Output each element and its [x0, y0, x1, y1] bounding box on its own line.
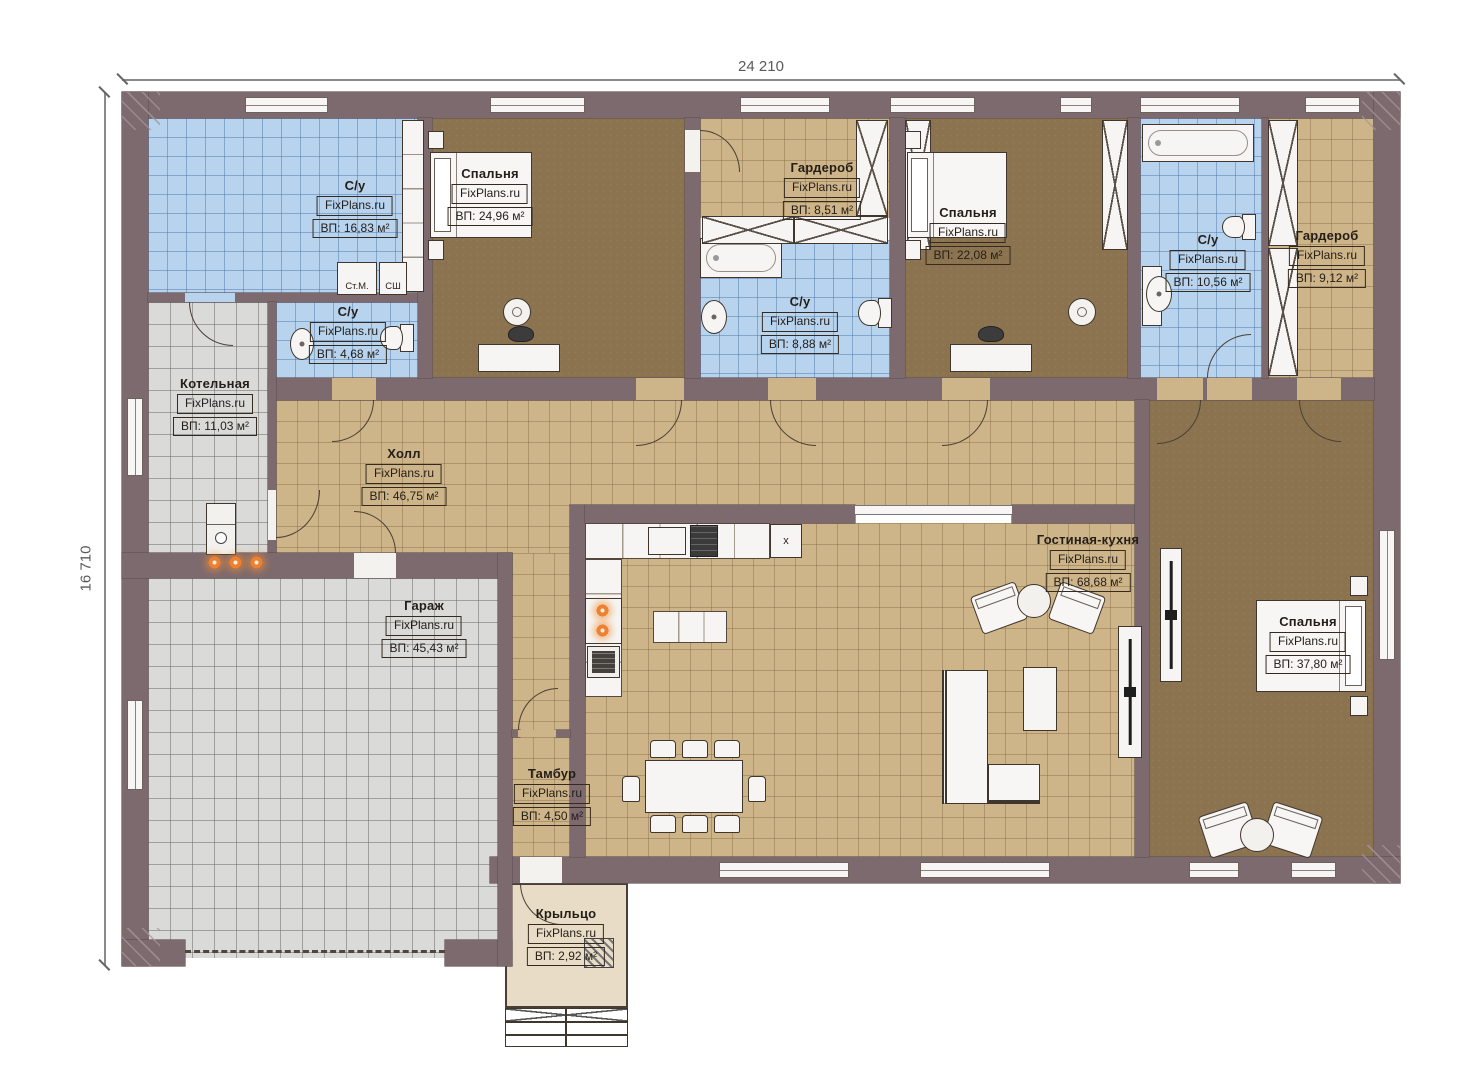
room-name: Спальня — [939, 205, 997, 220]
room-floor-hall — [276, 505, 570, 553]
watermark: FixPlans.ru — [366, 464, 442, 484]
wall-corner-hatch — [1362, 92, 1400, 130]
door-opening — [942, 378, 990, 400]
door-opening — [268, 490, 276, 540]
room-name: Гардероб — [790, 160, 853, 175]
room-label-tambour: Тамбур FixPlans.ru ВП: 4,50 м² — [513, 766, 591, 826]
room-label-bathroom-3: С/у FixPlans.ru ВП: 10,56 м² — [1166, 232, 1251, 292]
watermark: FixPlans.ru — [1170, 250, 1246, 270]
window — [1305, 97, 1360, 113]
window — [740, 97, 830, 113]
sink-icon — [701, 300, 727, 334]
wall — [122, 553, 512, 578]
chair-icon — [748, 776, 766, 802]
room-label-bedroom-2: Спальня FixPlans.ru ВП: 22,08 м² — [926, 205, 1011, 265]
dimension-line-top — [122, 79, 1400, 81]
hood-label: x — [783, 535, 789, 547]
wall — [122, 92, 148, 966]
window — [1060, 97, 1092, 113]
bathtub-icon — [1142, 124, 1254, 162]
room-area: ВП: 37,80 м² — [1266, 655, 1351, 675]
room-label-bathroom-1: С/у FixPlans.ru ВП: 16,83 м² — [313, 178, 398, 238]
room-label-bathroom-4: С/у FixPlans.ru ВП: 4,68 м² — [309, 304, 387, 364]
room-area: ВП: 8,88 м² — [761, 335, 839, 355]
room-label-bedroom-1: Спальня FixPlans.ru ВП: 24,96 м² — [448, 166, 533, 226]
watermark: FixPlans.ru — [386, 616, 462, 636]
room-area: ВП: 2,92 м² — [527, 947, 605, 967]
window — [890, 97, 975, 113]
room-label-garage: Гараж FixPlans.ru ВП: 45,43 м² — [382, 598, 467, 658]
flame-indicator-icon — [250, 556, 263, 569]
dimension-width-label: 24 210 — [730, 58, 792, 75]
watermark: FixPlans.ru — [762, 312, 838, 332]
wall — [1128, 118, 1140, 378]
wardrobe-icon — [794, 216, 888, 244]
floor-plan: 24 210 16 710 — [0, 0, 1473, 1080]
desk-chair-icon — [508, 326, 534, 342]
room-label-wardrobe-2: Гардероб FixPlans.ru ВП: 9,12 м² — [1288, 228, 1366, 288]
chair-icon — [682, 740, 708, 758]
door-opening — [768, 378, 816, 400]
nightstand-icon — [428, 131, 444, 149]
boiler-icon — [206, 503, 236, 555]
bathtub-icon — [700, 238, 782, 278]
chair-icon — [682, 815, 708, 833]
room-label-living-kitchen: Гостиная-кухня FixPlans.ru ВП: 68,68 м² — [1037, 532, 1139, 592]
plant-icon — [503, 298, 531, 326]
room-area: ВП: 46,75 м² — [362, 487, 447, 507]
window — [245, 97, 328, 113]
room-label-wardrobe-1: Гардероб FixPlans.ru ВП: 8,51 м² — [783, 160, 861, 220]
nightstand-icon — [905, 131, 921, 149]
toilet-icon — [858, 296, 892, 330]
chair-icon — [714, 815, 740, 833]
door-opening — [185, 293, 235, 302]
nightstand-icon — [905, 240, 921, 260]
coffee-table-icon — [1023, 667, 1057, 731]
room-label-bedroom-3: Спальня FixPlans.ru ВП: 37,80 м² — [1266, 614, 1351, 674]
room-name: С/у — [345, 178, 366, 193]
room-name: С/у — [790, 294, 811, 309]
wall-corner-hatch — [122, 928, 160, 966]
watermark: FixPlans.ru — [310, 322, 386, 342]
nightstand-icon — [1350, 696, 1368, 716]
room-label-bathroom-2: С/у FixPlans.ru ВП: 8,88 м² — [761, 294, 839, 354]
dresser-icon — [1160, 548, 1182, 682]
window — [490, 97, 585, 113]
door-opening — [685, 130, 700, 172]
window — [127, 398, 143, 476]
chair-icon — [714, 740, 740, 758]
kitchen-appliance-icon — [690, 525, 718, 557]
hood-icon: x — [770, 524, 802, 558]
room-area: ВП: 4,50 м² — [513, 807, 591, 827]
room-area: ВП: 22,08 м² — [926, 246, 1011, 266]
door-opening — [636, 378, 684, 400]
desk-icon — [478, 344, 560, 372]
room-name: Котельная — [180, 376, 250, 391]
window — [920, 862, 1050, 878]
wall — [1374, 92, 1400, 883]
watermark: FixPlans.ru — [452, 184, 528, 204]
washing-machine-label: Ст.М. — [345, 281, 368, 292]
watermark: FixPlans.ru — [177, 394, 253, 414]
dimension-height-label: 16 710 — [78, 538, 95, 600]
chair-icon — [650, 740, 676, 758]
stove-burner-icon — [596, 604, 609, 617]
sofa-chaise-icon — [988, 764, 1040, 804]
room-name: Тамбур — [528, 766, 576, 781]
room-name: Спальня — [1279, 614, 1337, 629]
watermark: FixPlans.ru — [1270, 632, 1346, 652]
watermark: FixPlans.ru — [1289, 246, 1365, 266]
porch-step-divider — [565, 1008, 567, 1047]
round-table-icon — [1240, 818, 1274, 852]
sofa-icon — [942, 670, 988, 804]
door-opening — [1157, 378, 1203, 400]
room-area: ВП: 9,12 м² — [1288, 269, 1366, 289]
room-area: ВП: 16,83 м² — [313, 219, 398, 239]
oven-icon — [587, 646, 620, 678]
door-opening — [1207, 378, 1252, 400]
dining-table-icon — [645, 760, 743, 813]
kitchen-island — [653, 611, 727, 643]
wall — [585, 505, 855, 523]
wall-corner-hatch — [1362, 845, 1400, 883]
stove-burner-icon — [596, 624, 609, 637]
watermark: FixPlans.ru — [528, 924, 604, 944]
window — [1140, 97, 1240, 113]
room-label-hall: Холл FixPlans.ru ВП: 46,75 м² — [362, 446, 447, 506]
flame-indicator-icon — [229, 556, 242, 569]
nightstand-icon — [1350, 576, 1368, 596]
flame-indicator-icon — [208, 556, 221, 569]
wall-corner-hatch — [122, 92, 160, 130]
watermark: FixPlans.ru — [514, 784, 590, 804]
wall — [556, 730, 570, 737]
wardrobe-icon — [1102, 120, 1128, 250]
room-name: Крыльцо — [536, 906, 597, 921]
room-name: С/у — [338, 304, 359, 319]
chair-icon — [650, 815, 676, 833]
room-name: Гараж — [404, 598, 444, 613]
dryer-label: СШ — [385, 281, 401, 292]
dryer-icon: СШ — [379, 262, 407, 295]
watermark: FixPlans.ru — [1050, 550, 1126, 570]
room-name: С/у — [1198, 232, 1219, 247]
room-name: Спальня — [461, 166, 519, 181]
washing-machine-icon: Ст.М. — [337, 262, 377, 295]
garage-door-line — [185, 950, 445, 953]
wall — [1012, 505, 1135, 523]
door-opening — [520, 857, 562, 883]
window — [719, 862, 849, 878]
plant-icon — [1068, 298, 1096, 326]
watermark: FixPlans.ru — [930, 223, 1006, 243]
window — [1379, 530, 1395, 660]
wall — [890, 118, 905, 378]
door-opening — [354, 553, 396, 578]
watermark: FixPlans.ru — [317, 196, 393, 216]
room-name: Гардероб — [1295, 228, 1358, 243]
kitchen-sink-icon — [648, 527, 686, 555]
room-area: ВП: 10,56 м² — [1166, 273, 1251, 293]
chair-icon — [622, 776, 640, 802]
room-name: Гостиная-кухня — [1037, 532, 1139, 547]
room-label-porch: Крыльцо FixPlans.ru ВП: 2,92 м² — [527, 906, 605, 966]
room-name: Холл — [387, 446, 420, 461]
tv-cabinet-icon — [1118, 626, 1142, 758]
wardrobe-icon — [702, 216, 794, 244]
nightstand-icon — [428, 240, 444, 260]
window — [127, 700, 143, 790]
room-area: ВП: 4,68 м² — [309, 345, 387, 365]
dimension-line-left — [104, 92, 106, 966]
room-area: ВП: 68,68 м² — [1046, 573, 1131, 593]
room-area: ВП: 11,03 м² — [173, 417, 257, 437]
window — [1291, 862, 1336, 878]
room-label-boiler: Котельная FixPlans.ru ВП: 11,03 м² — [173, 376, 257, 436]
desk-icon — [950, 344, 1032, 372]
window — [1189, 862, 1239, 878]
room-area: ВП: 45,43 м² — [382, 639, 467, 659]
door-opening — [1297, 378, 1341, 400]
room-area: ВП: 24,96 м² — [448, 207, 533, 227]
watermark: FixPlans.ru — [784, 178, 860, 198]
wall — [498, 553, 512, 966]
kitchen-opening-lintel — [855, 505, 1012, 515]
desk-chair-icon — [978, 326, 1004, 342]
door-opening — [332, 378, 376, 400]
door-opening — [518, 730, 556, 737]
room-area: ВП: 8,51 м² — [783, 201, 861, 221]
